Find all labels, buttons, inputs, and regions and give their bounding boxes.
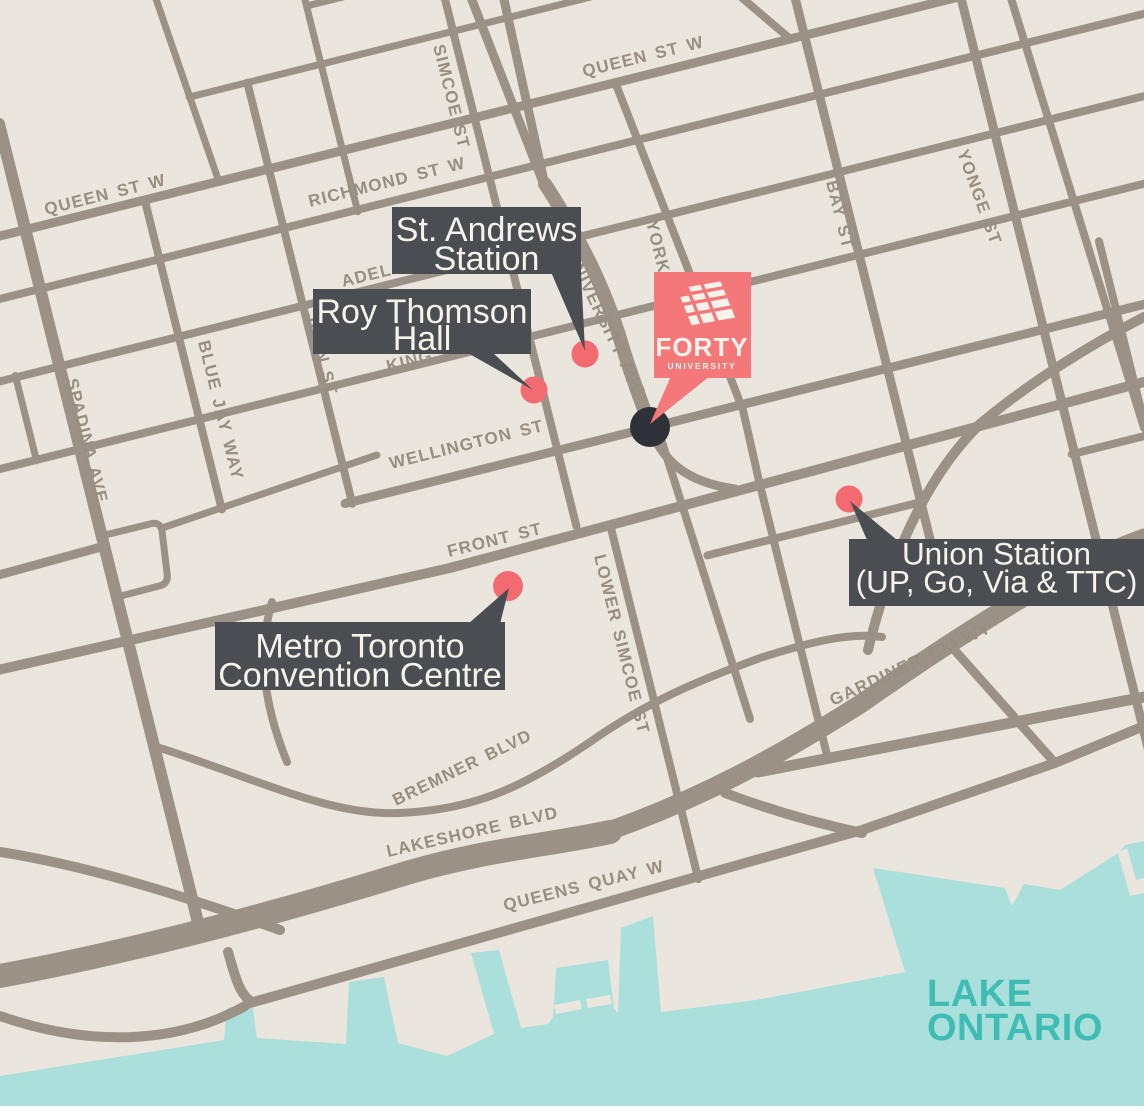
svg-text:Hall: Hall <box>393 320 452 358</box>
svg-text:FORTY: FORTY <box>655 332 748 362</box>
svg-text:(UP, Go, Via & TTC): (UP, Go, Via & TTC) <box>856 564 1138 600</box>
svg-text:Convention Centre: Convention Centre <box>218 656 502 694</box>
svg-text:Station: Station <box>434 240 540 278</box>
svg-text:ONTARIO: ONTARIO <box>927 1007 1103 1049</box>
svg-text:UNIVERSITY: UNIVERSITY <box>667 361 736 371</box>
